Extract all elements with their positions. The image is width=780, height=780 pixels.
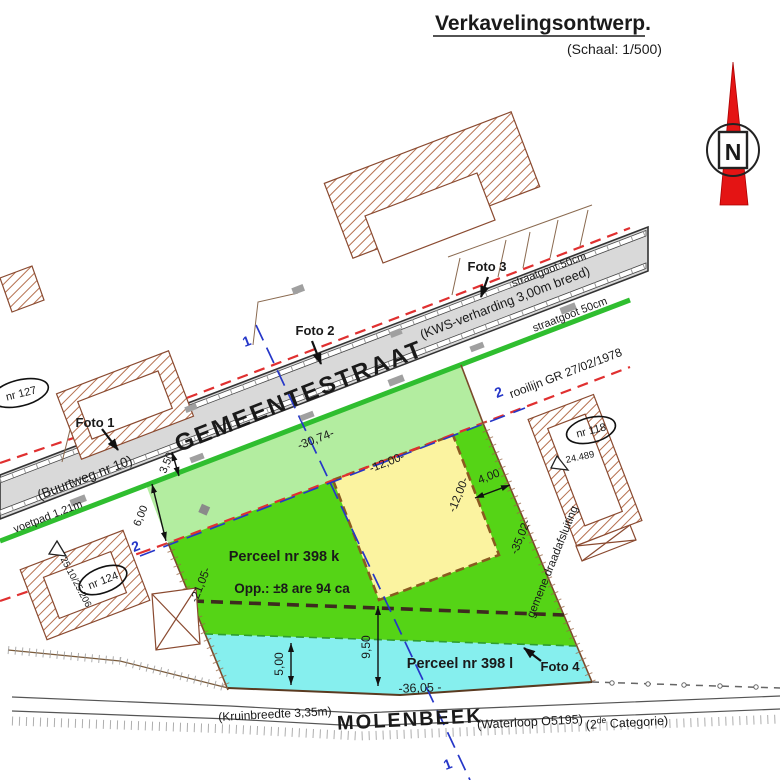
category-open: (2 [585,717,597,732]
foto-4-label: Foto 4 [541,659,581,674]
dim-depth: 9,50 [359,635,373,659]
site-plan-drawing: N Verkavelingsontwerp. (Schaal: 1/500) G… [0,0,780,780]
dim-bank: 5,00 [272,652,286,676]
plan-page: N Verkavelingsontwerp. (Schaal: 1/500) G… [0,0,780,780]
parcel-l-name: Perceel nr 398 l [407,656,513,672]
dim-bottom: -36,05 - [398,680,442,695]
scale-label: (Schaal: 1/500) [567,41,662,57]
parcel-k-name: Perceel nr 398 k [229,549,340,565]
parcel-k-area: Opp.: ±8 are 94 ca [234,581,350,596]
page-title: Verkavelingsontwerp. [435,12,651,35]
foto-3-label: Foto 3 [468,259,507,274]
north-label: N [725,139,742,165]
foto-1-label: Foto 1 [76,415,115,430]
foto-2-label: Foto 2 [296,323,335,338]
